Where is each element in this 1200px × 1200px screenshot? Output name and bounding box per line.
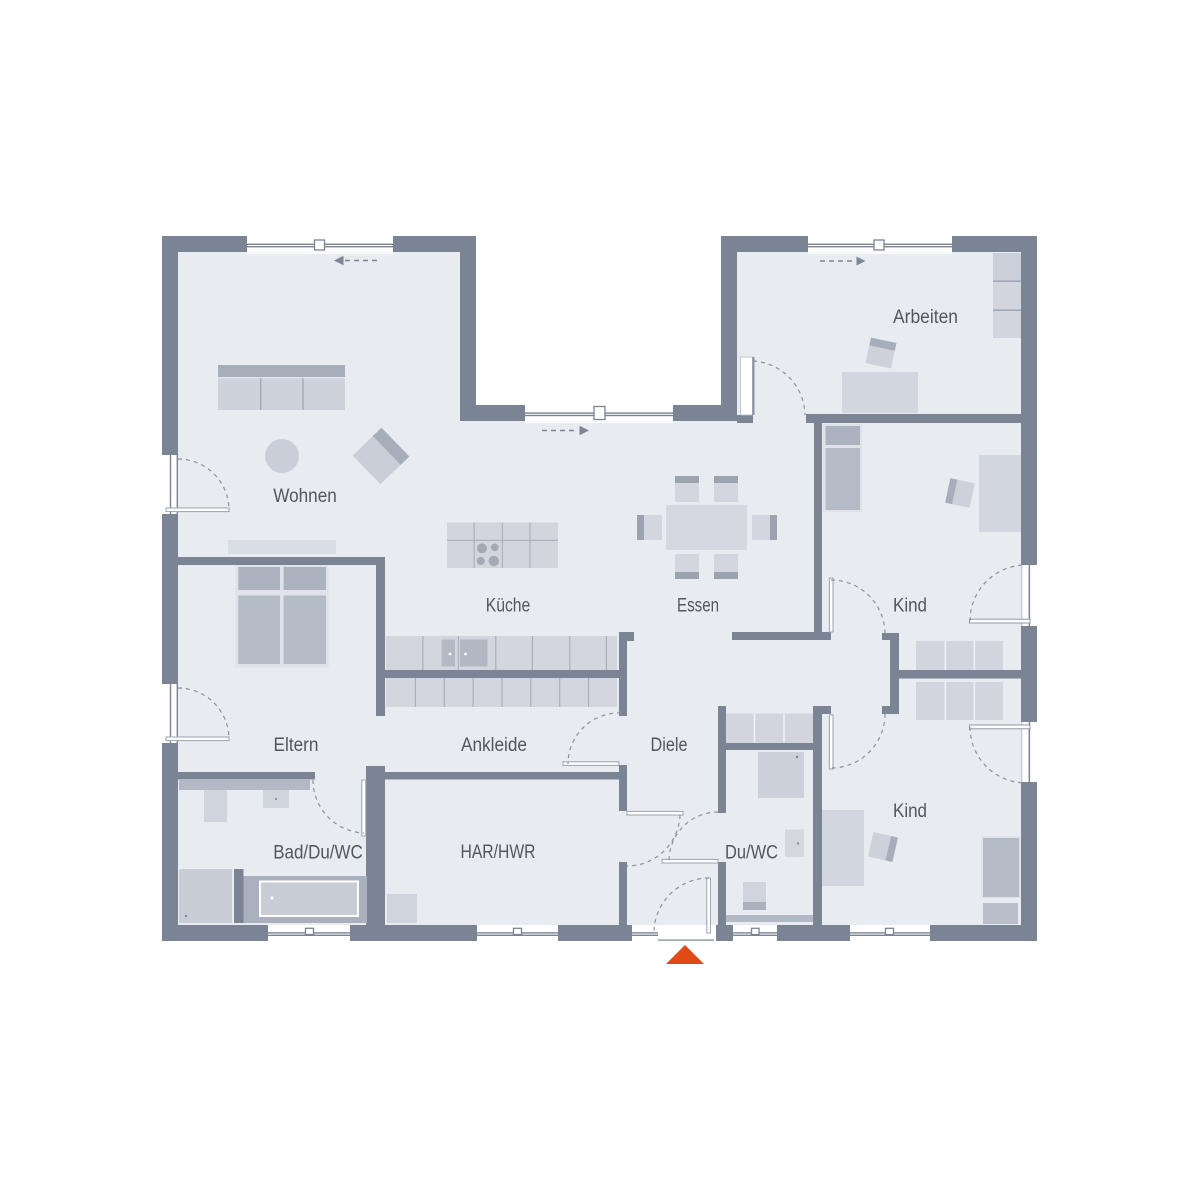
svg-text:Kind: Kind bbox=[893, 595, 927, 617]
svg-text:Küche: Küche bbox=[486, 595, 531, 617]
svg-text:Wohnen: Wohnen bbox=[273, 485, 337, 507]
svg-text:Arbeiten: Arbeiten bbox=[893, 306, 958, 328]
svg-text:Bad/Du/WC: Bad/Du/WC bbox=[273, 842, 363, 864]
svg-text:Kind: Kind bbox=[893, 800, 927, 822]
svg-text:Essen: Essen bbox=[677, 595, 719, 617]
svg-text:Eltern: Eltern bbox=[274, 734, 319, 756]
svg-text:HAR/HWR: HAR/HWR bbox=[461, 841, 536, 863]
svg-text:Ankleide: Ankleide bbox=[461, 734, 527, 756]
svg-text:Diele: Diele bbox=[651, 734, 688, 756]
svg-text:Du/WC: Du/WC bbox=[725, 842, 778, 864]
